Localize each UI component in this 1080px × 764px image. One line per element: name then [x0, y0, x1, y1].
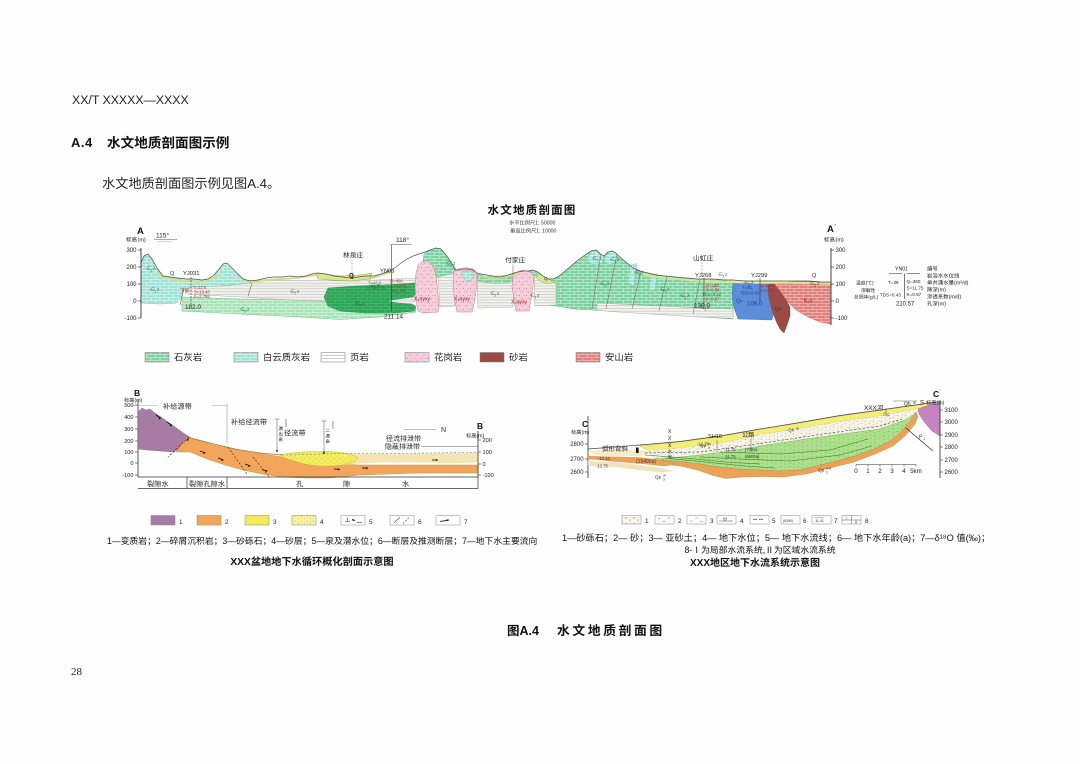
svg-text:N: N: [441, 427, 446, 434]
svg-text:(m): (m): [937, 401, 945, 407]
svg-text:′: ′: [940, 390, 941, 396]
svg-text::: :: [189, 288, 190, 293]
svg-text:,: ,: [763, 545, 765, 555]
svg-text:182.0: 182.0: [185, 304, 201, 311]
svg-text:2—: 2—: [613, 533, 628, 543]
svg-text:XXX: XXX: [864, 405, 878, 412]
svg-text:(m): (m): [938, 302, 946, 308]
svg-text:211.14: 211.14: [384, 314, 404, 321]
svg-text:YJ299: YJ299: [751, 273, 767, 279]
svg-text:B: B: [134, 388, 140, 398]
svg-text:(m): (m): [836, 238, 844, 244]
svg-text:8-: 8-: [685, 545, 693, 555]
svg-text:7—δ¹⁸O: 7—δ¹⁸O: [920, 533, 954, 543]
svg-text:3: 3: [890, 468, 894, 475]
svg-text:-12.75: -12.75: [697, 442, 710, 447]
svg-text:1: 10000: 1: 10000: [536, 229, 556, 235]
svg-text:3: 3: [710, 518, 714, 525]
svg-text:Qp: Qp: [818, 468, 825, 473]
svg-text:-12.44: -12.44: [598, 456, 611, 461]
svg-text:210.57: 210.57: [896, 302, 915, 308]
svg-text:2: 2: [878, 468, 882, 475]
svg-text:(m): (m): [477, 434, 485, 440]
svg-text:1: 50000: 1: 50000: [535, 221, 555, 227]
svg-text:-100: -100: [125, 316, 138, 322]
svg-text:Qh: Qh: [788, 428, 795, 433]
svg-text:200: 200: [127, 265, 138, 271]
svg-text:-11.75: -11.75: [724, 447, 736, 452]
svg-text:(m): (m): [582, 430, 590, 436]
svg-text:3: 3: [663, 478, 665, 482]
svg-text:4: 4: [902, 468, 906, 475]
svg-text:Q: Q: [544, 276, 548, 281]
svg-text:-12.75: -12.75: [596, 464, 609, 469]
svg-text:C: C: [933, 389, 939, 399]
svg-text:100: 100: [836, 282, 847, 288]
svg-text:(15490a): (15490a): [636, 459, 656, 465]
svg-text:T=36: T=36: [888, 280, 899, 285]
svg-text:(a): (a): [900, 533, 911, 543]
svg-text:Q: Q: [812, 273, 817, 279]
svg-text:S: S: [920, 401, 924, 407]
svg-text:A.4: A.4: [71, 135, 93, 150]
svg-text:Qh: Qh: [904, 402, 911, 408]
svg-text:3—: 3—: [222, 536, 236, 546]
svg-text:300: 300: [836, 248, 847, 254]
svg-text:1: 1: [924, 437, 926, 441]
svg-text:400: 400: [124, 415, 133, 421]
svg-text:5—: 5—: [765, 533, 780, 543]
svg-text:-100: -100: [483, 473, 494, 479]
svg-text:2800: 2800: [570, 442, 584, 448]
svg-text:300: 300: [124, 427, 133, 433]
svg-text:X₂ηγxy: X₂ηγxy: [454, 297, 471, 303]
svg-text:4: 4: [320, 519, 324, 526]
svg-text:500: 500: [124, 403, 133, 409]
svg-text:2900: 2900: [945, 433, 959, 439]
svg-text:3100: 3100: [945, 408, 959, 414]
svg-text:1: 1: [179, 519, 183, 526]
svg-text:C: C: [582, 419, 588, 429]
svg-text:100: 100: [124, 450, 133, 456]
svg-text:A: A: [137, 226, 144, 237]
svg-text:XXX: XXX: [690, 558, 710, 569]
svg-text:Qp: Qp: [655, 475, 662, 480]
svg-text:S=11.75: S=11.75: [907, 286, 924, 291]
svg-text:B: B: [477, 421, 483, 431]
svg-text:(m): (m): [938, 288, 946, 294]
svg-text:A.4: A.4: [520, 624, 540, 638]
svg-text:K=0.67: K=0.67: [706, 297, 720, 302]
svg-text:Q: Q: [349, 273, 354, 280]
svg-text:100: 100: [127, 282, 138, 288]
svg-text:5—: 5—: [311, 536, 325, 546]
svg-text:SH16: SH16: [708, 434, 722, 440]
svg-text:-11.75: -11.75: [724, 454, 736, 459]
svg-text:(6390): (6390): [783, 519, 793, 523]
svg-text:1—: 1—: [107, 536, 121, 546]
svg-text:6: 6: [803, 518, 807, 525]
svg-text:2700: 2700: [570, 457, 584, 463]
svg-text:6—: 6—: [378, 536, 392, 546]
svg-text:100: 100: [483, 450, 492, 456]
svg-text:3—: 3—: [648, 533, 663, 543]
svg-text:-100: -100: [836, 316, 849, 322]
svg-text:A: A: [827, 224, 834, 235]
svg-text:X₂ηγxy: X₂ηγxy: [414, 297, 431, 303]
svg-text:S=8.42: S=8.42: [760, 288, 774, 293]
svg-text:4: 4: [740, 518, 744, 525]
svg-text:5: 5: [772, 518, 776, 525]
svg-text:0: 0: [854, 468, 858, 475]
svg-text:7: 7: [464, 519, 468, 526]
svg-text:3: 3: [273, 519, 277, 526]
svg-text:0: 0: [483, 462, 486, 468]
svg-text:P: P: [919, 435, 923, 441]
svg-text:T=45,: T=45,: [742, 285, 753, 290]
svg-text:(6600a): (6600a): [745, 454, 760, 459]
svg-text:5km: 5km: [910, 468, 922, 475]
svg-text:K=1.787: K=1.787: [391, 289, 407, 294]
svg-text:1: 1: [826, 471, 828, 475]
svg-text:K=0.57: K=0.57: [907, 292, 922, 297]
svg-text:-11,41: -11,41: [814, 519, 824, 523]
svg-text:al: al: [796, 427, 799, 431]
svg-text:YN03: YN03: [380, 269, 395, 275]
svg-text:Q≈: Q≈: [736, 299, 743, 305]
svg-text:YN01: YN01: [895, 267, 908, 273]
svg-text:(g/L): (g/L): [868, 295, 878, 301]
svg-text:4—: 4—: [271, 536, 285, 546]
svg-text:(‰): (‰): [966, 533, 981, 543]
svg-text:-100: -100: [122, 473, 133, 479]
svg-text:al: al: [913, 401, 916, 405]
svg-text:6: 6: [418, 519, 422, 526]
svg-text:8: 8: [865, 518, 869, 525]
svg-text:0: 0: [130, 461, 133, 467]
svg-text:2: 2: [678, 518, 682, 525]
svg-text:28: 28: [71, 666, 83, 678]
svg-text:3: 3: [708, 446, 710, 450]
svg-text:2600: 2600: [570, 470, 584, 476]
svg-text:7—: 7—: [462, 536, 476, 546]
svg-text:1: 1: [645, 518, 649, 525]
svg-text:YJ031: YJ031: [183, 271, 199, 277]
svg-text:115°: 115°: [156, 232, 169, 240]
svg-text:Q≈: Q≈: [775, 307, 782, 313]
svg-text:118°: 118°: [396, 236, 409, 244]
svg-text:(m³/d): (m³/d): [954, 281, 969, 287]
svg-text:A.4: A.4: [247, 176, 267, 191]
svg-text:YJ268: YJ268: [695, 273, 711, 279]
svg-text:1: 1: [866, 468, 870, 475]
svg-text:1—: 1—: [562, 533, 577, 543]
svg-text:7: 7: [834, 518, 838, 525]
svg-text:2700: 2700: [945, 458, 959, 464]
svg-text:(770a): (770a): [745, 447, 758, 452]
svg-text:300: 300: [127, 248, 138, 254]
svg-text:200: 200: [124, 439, 133, 445]
svg-text:(m): (m): [138, 238, 146, 244]
svg-text:2—: 2—: [156, 536, 170, 546]
svg-text:4—: 4—: [702, 533, 717, 543]
svg-text:(m): (m): [135, 398, 143, 404]
svg-text:3000: 3000: [945, 420, 959, 426]
svg-text:K=2.786: K=2.786: [194, 294, 210, 299]
svg-text:2800: 2800: [945, 445, 959, 451]
svg-text:2: 2: [225, 519, 229, 526]
svg-text:XXX: XXX: [230, 557, 251, 568]
svg-text:Q=360: Q=360: [907, 279, 921, 284]
svg-text:2600: 2600: [945, 470, 959, 476]
svg-text:XX/T XXXXX—XXXX: XX/T XXXXX—XXXX: [72, 93, 189, 107]
svg-text:TDS=0.43: TDS=0.43: [880, 293, 901, 298]
svg-text:TDS=0.43: TDS=0.43: [740, 291, 760, 296]
svg-text:X₂ηγxy: X₂ηγxy: [511, 300, 528, 306]
svg-text:106.0: 106.0: [747, 301, 763, 308]
svg-text:′: ′: [484, 422, 485, 428]
svg-text:5: 5: [369, 519, 373, 526]
svg-text:Q: Q: [170, 271, 175, 277]
svg-text:200: 200: [836, 265, 847, 271]
svg-text:K₁a: K₁a: [804, 299, 814, 305]
svg-text:(m/d): (m/d): [949, 295, 962, 301]
svg-text:6—: 6—: [837, 533, 852, 543]
